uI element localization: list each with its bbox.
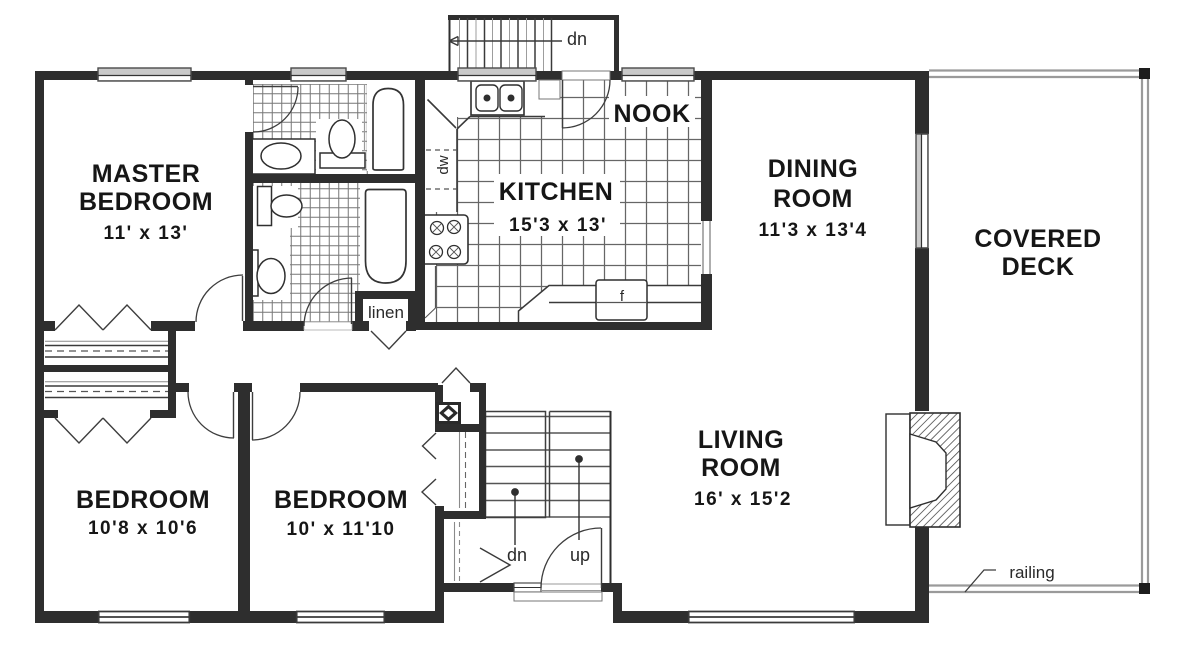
svg-text:DINING: DINING	[768, 155, 859, 183]
svg-text:linen: linen	[368, 303, 404, 322]
svg-text:NOOK: NOOK	[614, 100, 691, 128]
svg-text:dn: dn	[567, 29, 587, 49]
svg-text:dw: dw	[435, 155, 452, 174]
svg-text:BEDROOM: BEDROOM	[76, 486, 210, 514]
svg-text:ROOM: ROOM	[773, 185, 853, 213]
svg-text:KITCHEN: KITCHEN	[499, 178, 614, 206]
svg-text:10' x 11'10: 10' x 11'10	[286, 519, 395, 540]
svg-text:10'8 x 10'6: 10'8 x 10'6	[88, 518, 198, 539]
svg-text:11' x 13': 11' x 13'	[104, 223, 189, 244]
svg-text:LIVING: LIVING	[698, 426, 784, 454]
svg-text:16' x 15'2: 16' x 15'2	[694, 489, 792, 510]
svg-text:dn: dn	[507, 545, 527, 565]
svg-text:BEDROOM: BEDROOM	[79, 188, 213, 216]
svg-text:15'3 x 13': 15'3 x 13'	[509, 215, 607, 236]
svg-text:ROOM: ROOM	[701, 454, 781, 482]
svg-text:MASTER: MASTER	[92, 160, 201, 188]
svg-text:railing: railing	[1009, 563, 1054, 582]
svg-text:11'3 x 13'4: 11'3 x 13'4	[758, 220, 867, 241]
svg-text:DECK: DECK	[1002, 253, 1075, 281]
svg-text:BEDROOM: BEDROOM	[274, 486, 408, 514]
svg-text:COVERED: COVERED	[974, 225, 1101, 253]
svg-text:up: up	[570, 545, 590, 565]
